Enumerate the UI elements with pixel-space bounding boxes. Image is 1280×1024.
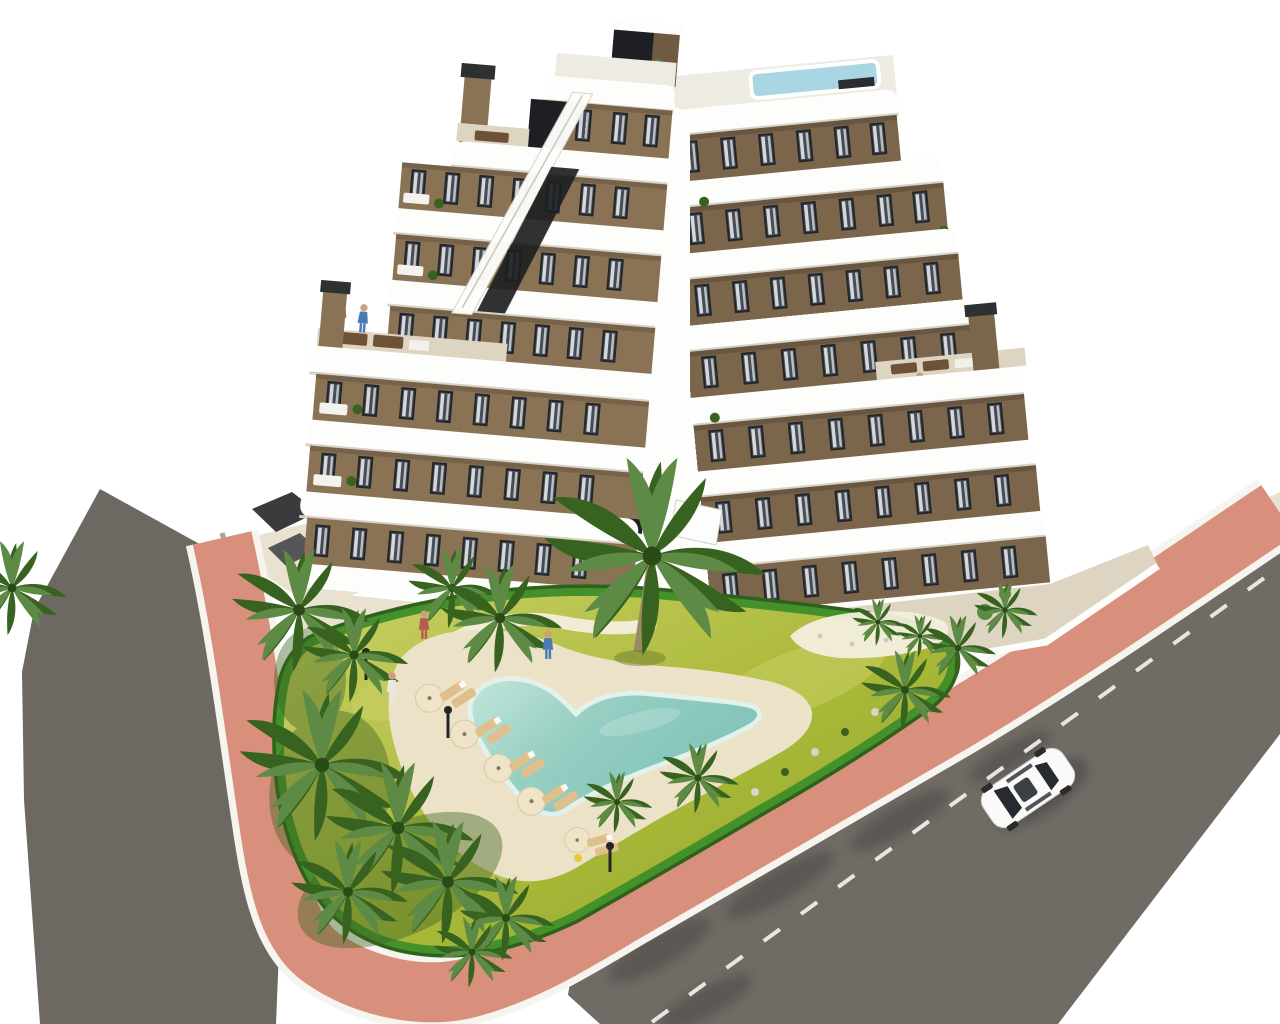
window [827, 417, 845, 450]
window [741, 351, 759, 384]
window [758, 133, 776, 166]
window [708, 429, 726, 462]
window [869, 122, 887, 155]
window [583, 403, 601, 436]
window [466, 465, 484, 498]
window [539, 252, 557, 285]
chimney [968, 310, 999, 370]
chimney [319, 288, 348, 348]
window [987, 402, 1005, 435]
window [820, 344, 838, 377]
window [725, 208, 743, 241]
window [572, 255, 590, 288]
window [834, 489, 852, 522]
window [912, 190, 930, 223]
window [961, 549, 979, 582]
window [874, 485, 892, 518]
window [534, 543, 552, 576]
window [533, 324, 551, 357]
window [795, 493, 813, 526]
window [642, 114, 660, 147]
terrace-table [409, 340, 430, 352]
window [694, 284, 712, 317]
terrace-table [954, 358, 973, 369]
window [788, 421, 806, 454]
window [313, 524, 331, 557]
pool-float [574, 854, 582, 862]
window [796, 129, 814, 162]
window [732, 280, 750, 313]
window [770, 276, 788, 309]
window [781, 348, 799, 381]
window [841, 561, 859, 594]
window [350, 527, 368, 560]
window [876, 194, 894, 227]
window [393, 459, 411, 492]
window [867, 414, 885, 447]
window [838, 197, 856, 230]
window [612, 186, 630, 219]
window [477, 175, 495, 208]
window [763, 205, 781, 238]
window [762, 568, 780, 601]
window [881, 557, 899, 590]
window [701, 355, 719, 388]
window [801, 565, 819, 598]
window [860, 340, 878, 373]
window [546, 399, 564, 432]
window [606, 258, 624, 291]
window [907, 410, 925, 443]
window [443, 172, 461, 205]
window [473, 393, 491, 426]
window [801, 201, 819, 234]
window [578, 183, 596, 216]
window [923, 262, 941, 295]
window [845, 269, 863, 302]
window [430, 462, 448, 495]
window [883, 265, 901, 298]
window [600, 330, 618, 363]
window [921, 553, 939, 586]
render-canvas [0, 0, 1280, 1024]
window [566, 327, 584, 360]
window [914, 481, 932, 514]
balcony-sofa [319, 402, 348, 415]
window [755, 497, 773, 530]
palm-shadow [614, 650, 666, 666]
terrace-sofa [373, 335, 404, 349]
window [436, 390, 454, 423]
window [947, 406, 965, 439]
window [611, 112, 629, 145]
window [1001, 545, 1019, 578]
window [503, 468, 521, 501]
chimney-cap [320, 280, 351, 294]
window [437, 244, 455, 277]
window [748, 425, 766, 458]
window [424, 534, 442, 567]
window [399, 387, 417, 420]
balcony-sofa [313, 474, 342, 487]
window [509, 396, 527, 429]
window [362, 384, 380, 417]
window [807, 273, 825, 306]
window [834, 126, 852, 159]
window [356, 456, 374, 489]
window [994, 474, 1012, 507]
window [954, 478, 972, 511]
chimney-cap [461, 63, 496, 80]
window [720, 136, 738, 169]
window [387, 531, 405, 564]
